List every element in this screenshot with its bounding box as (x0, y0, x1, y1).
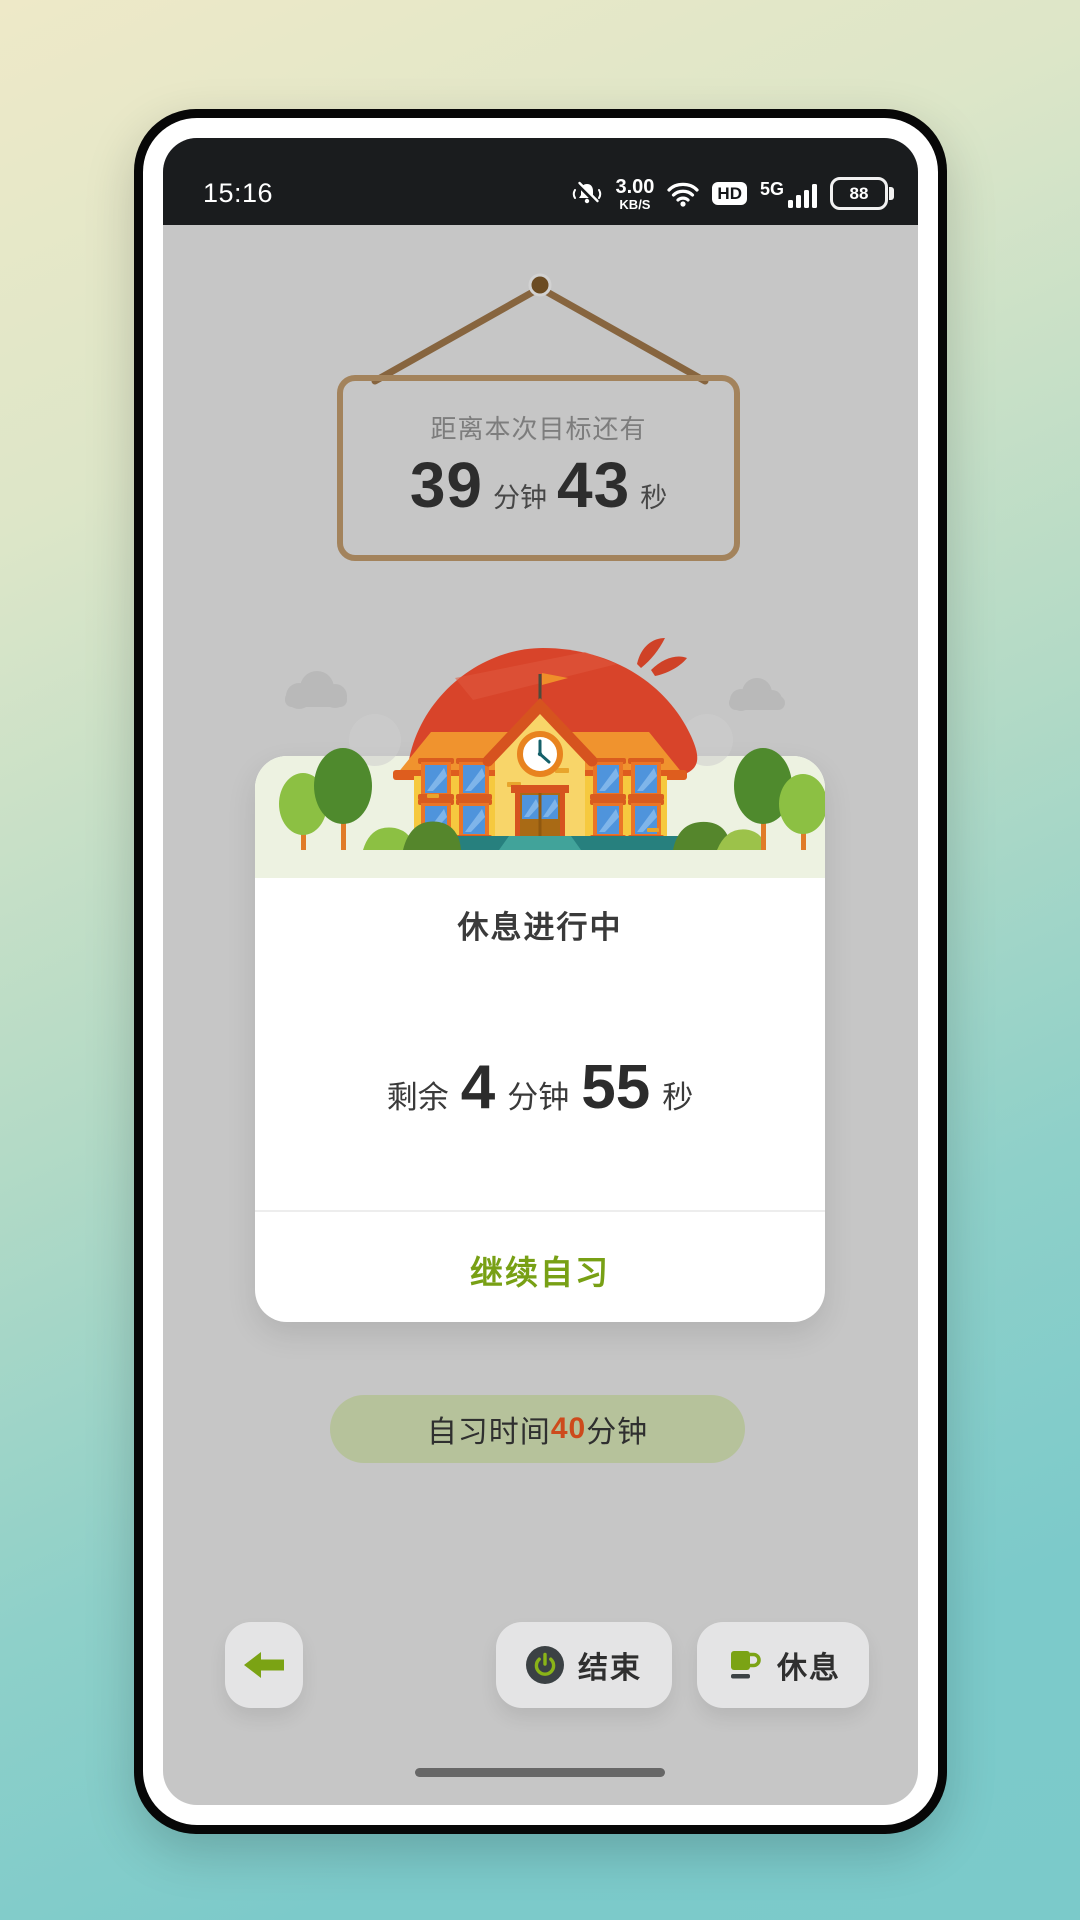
remaining-seconds-unit: 秒 (662, 1072, 693, 1117)
goal-seconds: 43 (557, 448, 630, 522)
cup-icon (725, 1648, 763, 1682)
session-duration-pill: 自习时间40分钟 (330, 1395, 745, 1463)
goal-minutes: 39 (410, 448, 483, 522)
home-indicator[interactable] (415, 1768, 665, 1777)
remaining-label: 剩余 (387, 1072, 449, 1117)
goal-sign-caption: 距离本次目标还有 (430, 409, 646, 446)
session-duration-prefix: 自习时间 (427, 1407, 551, 1451)
goal-seconds-unit: 秒 (640, 476, 667, 515)
remaining-minutes: 4 (461, 1052, 495, 1123)
power-icon (526, 1646, 564, 1684)
end-button-label: 结束 (578, 1643, 642, 1687)
cloud-icon (729, 678, 785, 711)
school-illustration (255, 636, 825, 876)
rest-button-label: 休息 (777, 1643, 841, 1687)
back-arrow-icon (241, 1649, 287, 1681)
back-button[interactable] (225, 1622, 303, 1708)
rest-button[interactable]: 休息 (697, 1622, 869, 1708)
end-session-button[interactable]: 结束 (496, 1622, 672, 1708)
remaining-seconds: 55 (581, 1052, 650, 1123)
phone-frame: 15:16 3.00 KB/S (134, 109, 947, 1834)
cloud-icon (285, 671, 347, 709)
session-duration-minutes: 40 (551, 1412, 586, 1446)
card-divider (255, 1210, 825, 1212)
remaining-minutes-unit: 分钟 (507, 1072, 569, 1117)
goal-countdown: 39 分钟 43 秒 (410, 448, 667, 522)
goal-minutes-unit: 分钟 (493, 476, 547, 515)
rest-countdown: 剩余 4 分钟 55 秒 (255, 1052, 825, 1123)
app-screen: 15:16 3.00 KB/S (163, 138, 918, 1805)
door-icon (511, 785, 569, 842)
clock-icon (520, 734, 560, 774)
rest-status-title: 休息进行中 (255, 902, 825, 947)
continue-study-button[interactable]: 继续自习 (255, 1246, 825, 1294)
goal-sign-board: 距离本次目标还有 39 分钟 43 秒 (337, 375, 740, 561)
session-duration-suffix: 分钟 (586, 1407, 648, 1451)
